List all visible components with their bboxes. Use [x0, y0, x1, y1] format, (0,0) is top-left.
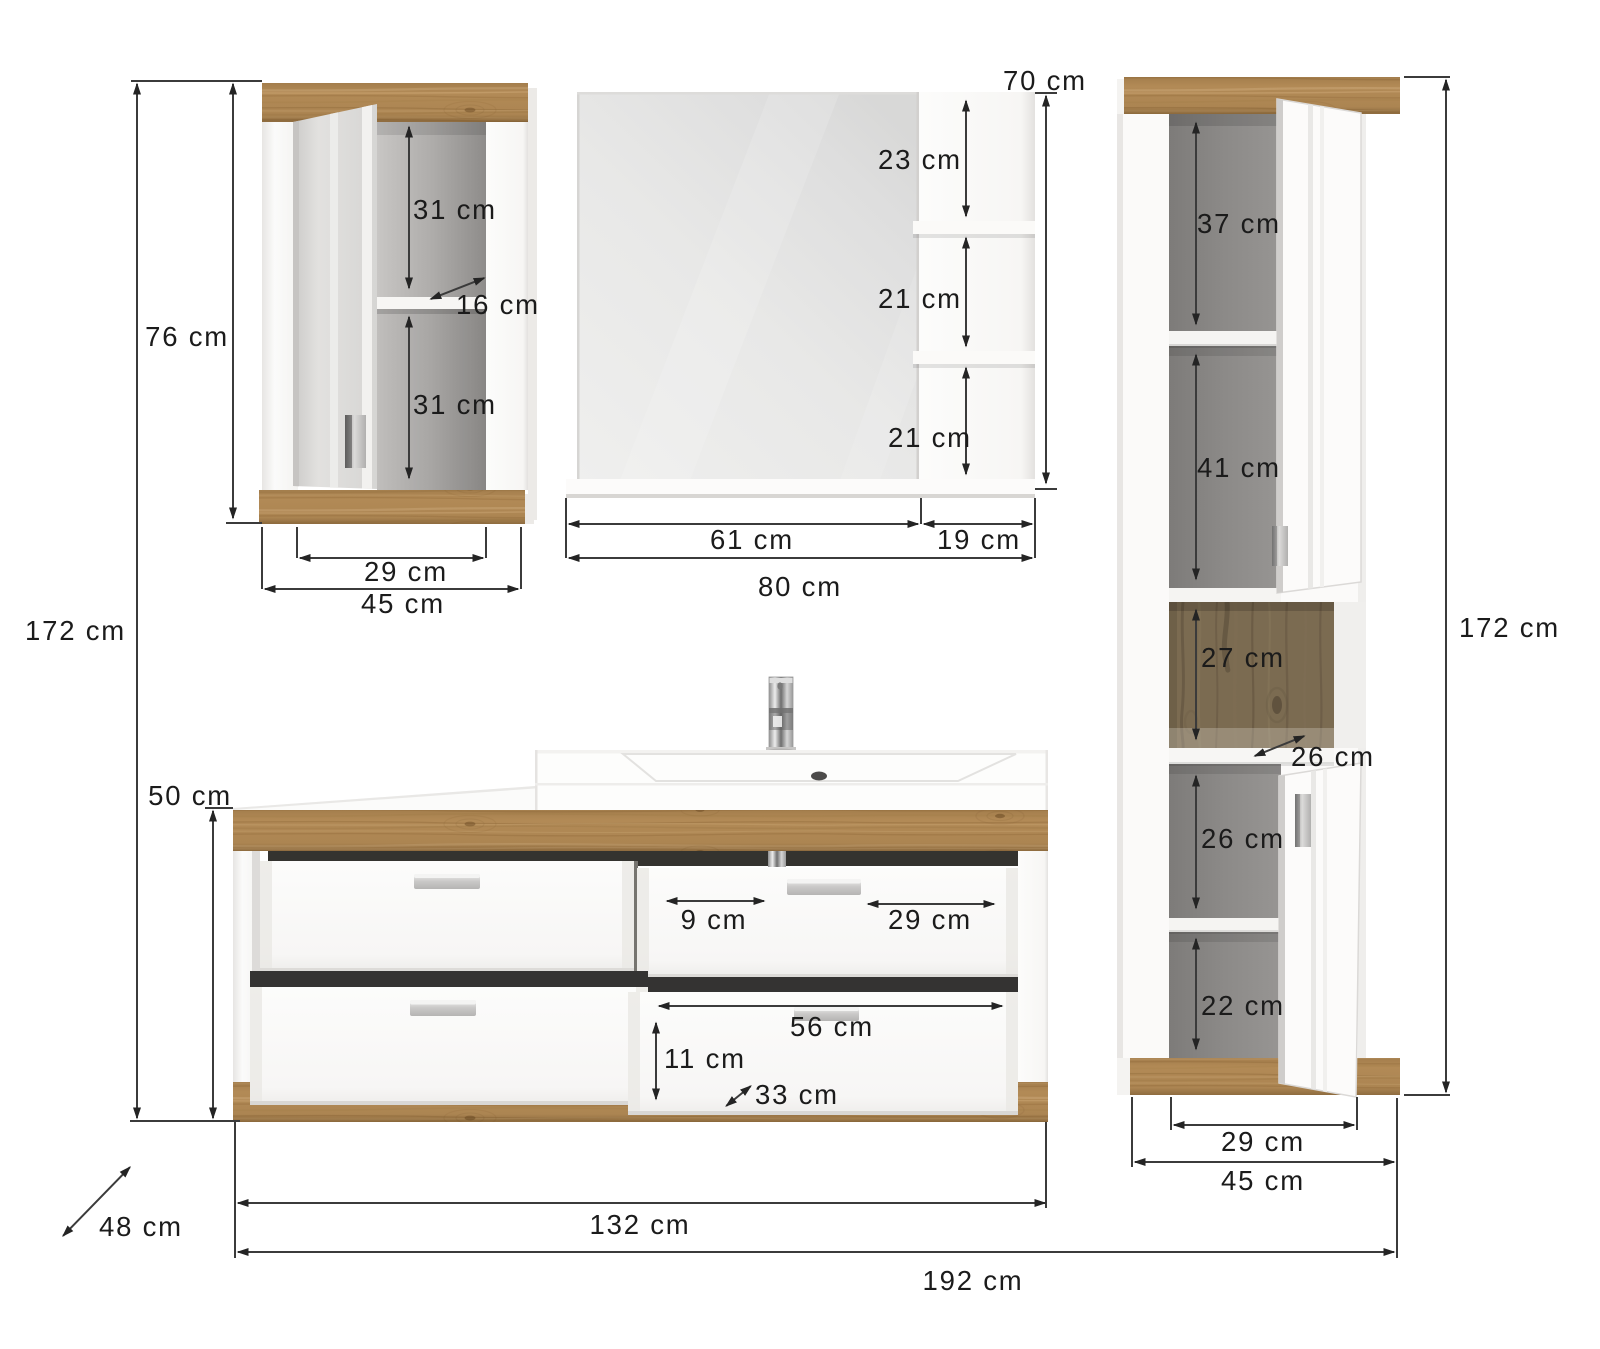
svg-text:45 cm: 45 cm [361, 588, 445, 619]
svg-text:56 cm: 56 cm [790, 1011, 874, 1042]
svg-text:23 cm: 23 cm [878, 144, 962, 175]
svg-text:19 cm: 19 cm [937, 524, 1021, 555]
svg-text:45 cm: 45 cm [1221, 1165, 1305, 1196]
svg-text:31 cm: 31 cm [413, 389, 497, 420]
svg-text:26 cm: 26 cm [1201, 823, 1285, 854]
svg-text:70 cm: 70 cm [1003, 65, 1087, 96]
svg-text:16 cm: 16 cm [456, 289, 540, 320]
svg-text:172 cm: 172 cm [25, 615, 126, 646]
svg-text:29 cm: 29 cm [1221, 1126, 1305, 1157]
svg-text:37 cm: 37 cm [1197, 208, 1281, 239]
svg-text:41 cm: 41 cm [1197, 452, 1281, 483]
svg-text:21 cm: 21 cm [888, 422, 972, 453]
svg-text:21 cm: 21 cm [878, 283, 962, 314]
svg-text:26 cm: 26 cm [1291, 741, 1375, 772]
svg-text:132 cm: 132 cm [590, 1209, 691, 1240]
svg-text:27 cm: 27 cm [1201, 642, 1285, 673]
svg-text:31 cm: 31 cm [413, 194, 497, 225]
svg-text:33 cm: 33 cm [755, 1079, 839, 1110]
svg-text:61 cm: 61 cm [710, 524, 794, 555]
svg-text:11 cm: 11 cm [664, 1043, 746, 1074]
svg-text:29 cm: 29 cm [364, 556, 448, 587]
svg-text:76 cm: 76 cm [145, 321, 229, 352]
svg-text:22 cm: 22 cm [1201, 990, 1285, 1021]
svg-text:29 cm: 29 cm [888, 904, 972, 935]
svg-text:50 cm: 50 cm [148, 780, 232, 811]
svg-text:172 cm: 172 cm [1459, 612, 1560, 643]
svg-text:48 cm: 48 cm [99, 1211, 183, 1242]
svg-text:80 cm: 80 cm [758, 571, 842, 602]
svg-text:192 cm: 192 cm [923, 1265, 1024, 1296]
svg-text:9 cm: 9 cm [681, 904, 748, 935]
